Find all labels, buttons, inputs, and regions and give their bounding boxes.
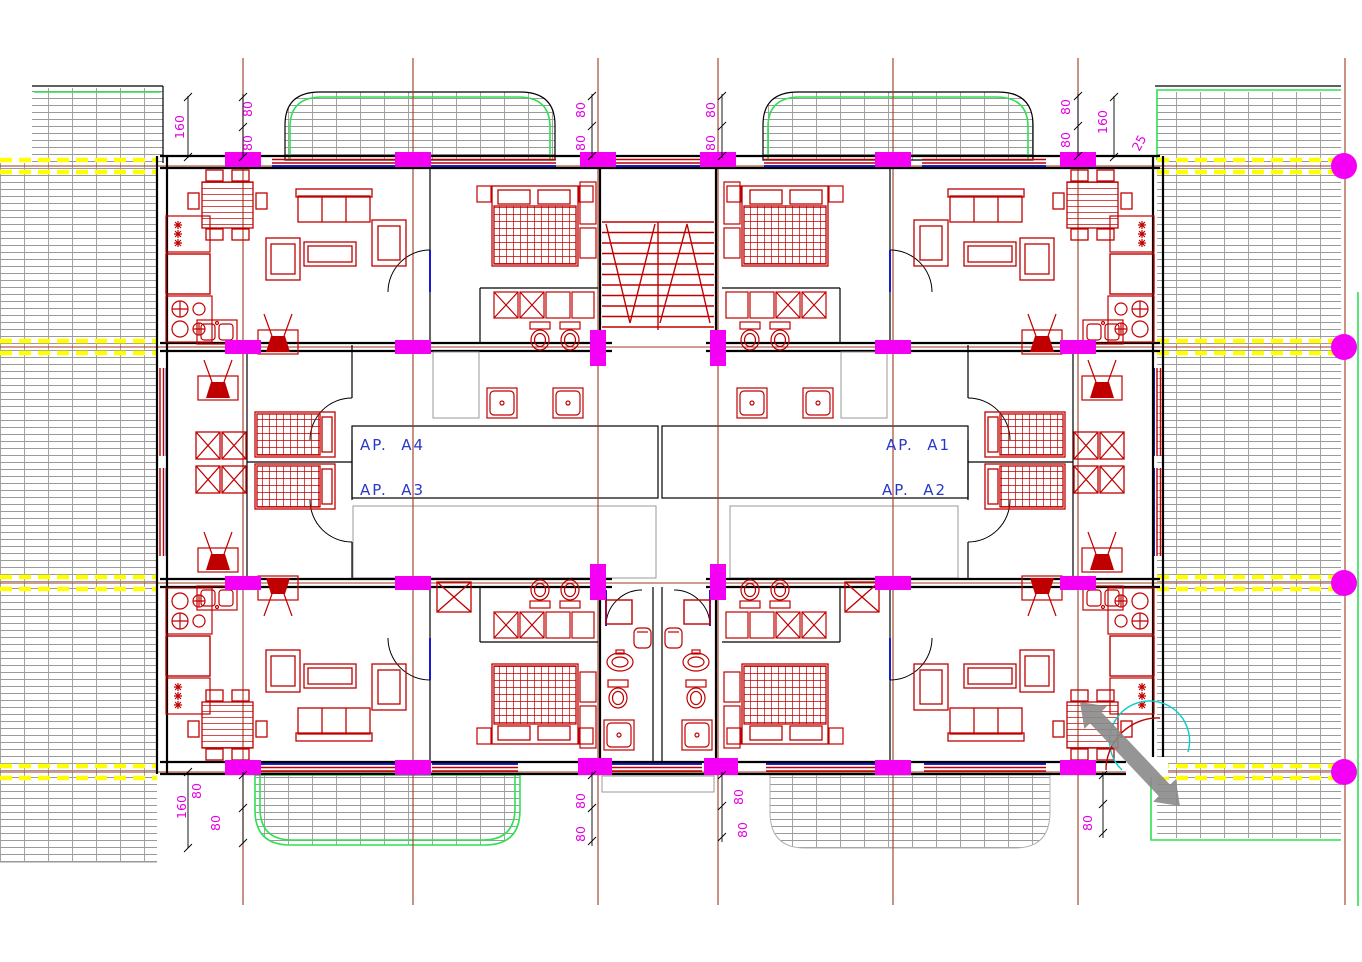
label-ap-right-top: AP. A1 [886, 436, 951, 454]
entry-halls [604, 590, 712, 750]
apartment-labels: AP. A4 AP. A3 AP. A1 AP. A2 [360, 436, 951, 499]
toilet [608, 680, 628, 708]
stool [634, 628, 651, 648]
dim-text: 80 [703, 135, 718, 151]
middle-rooms-left [196, 345, 583, 579]
stair-direction-line [606, 224, 655, 323]
dim-text: 80 [735, 822, 750, 838]
dim-text: 80 [189, 783, 204, 799]
apartment-left-top [166, 168, 598, 354]
dim-text: 80 [1058, 132, 1073, 148]
survey-point [1331, 759, 1357, 785]
windows [160, 160, 1161, 772]
label-ap-left-bottom: AP. A3 [360, 481, 425, 499]
survey-point [1331, 334, 1357, 360]
shower-tray [682, 720, 712, 750]
dim-text: 80 [731, 789, 746, 805]
floor-plan-drawing: AP. A4 AP. A3 AP. A1 AP. A2 160 80 80 80… [0, 0, 1362, 962]
west-terrace [0, 163, 157, 862]
dim-text: 80 [573, 793, 588, 809]
staircase [602, 222, 714, 330]
dim-text: 80 [208, 815, 223, 831]
washbasin [607, 650, 633, 671]
washbasin [683, 650, 709, 671]
survey-point [1331, 570, 1357, 596]
dim-text: 160 [1095, 110, 1110, 134]
hall-cabinet [684, 600, 710, 624]
stool [665, 628, 682, 648]
dim-text: 160 [174, 795, 189, 819]
floor-plan-canvas: AP. A4 AP. A3 AP. A1 AP. A2 160 80 80 80… [0, 0, 1362, 962]
dim-text: 160 [172, 115, 187, 139]
north-balcony-right [763, 92, 1033, 160]
north-balcony-left [285, 92, 555, 160]
dim-text: 80 [573, 135, 588, 151]
dim-text: 80 [573, 102, 588, 118]
apartment-left-bottom [166, 576, 598, 762]
stair-direction-line [660, 224, 710, 323]
dim-text: 25 [1129, 132, 1150, 153]
shower-tray [604, 720, 634, 750]
apartment-right-bottom [722, 576, 1154, 762]
south-balcony-left [255, 775, 520, 845]
label-ap-right-bottom: AP. A2 [882, 481, 947, 499]
dim-text: 80 [703, 102, 718, 118]
east-terrace [1157, 160, 1341, 838]
dim-text: 80 [240, 101, 255, 117]
apartment-right-top [722, 168, 1154, 354]
dim-text: 80 [240, 135, 255, 151]
toilet [686, 680, 706, 708]
northeast-terrace [1157, 92, 1341, 160]
middle-rooms-right [737, 345, 1124, 579]
entry-porch [602, 776, 714, 792]
label-ap-left-top: AP. A4 [360, 436, 425, 454]
south-balcony-right [770, 775, 1050, 848]
survey-point [1331, 153, 1357, 179]
dim-text: 80 [1058, 99, 1073, 115]
hall-cabinet [606, 600, 632, 624]
dim-text: 80 [573, 826, 588, 842]
dim-text: 80 [1080, 815, 1095, 831]
